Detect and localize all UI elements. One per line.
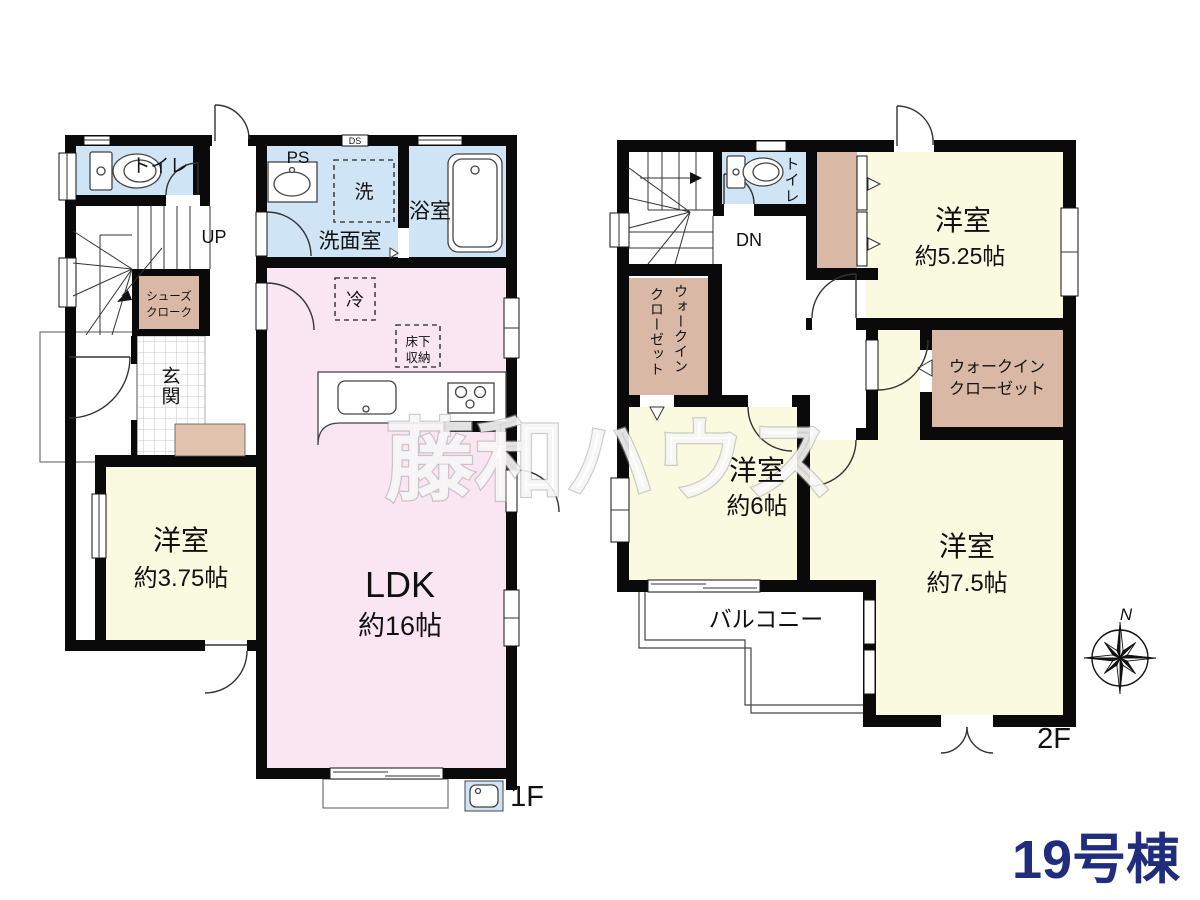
label-wic-right-2: クローゼット <box>949 380 1045 398</box>
unit-number-label: 19号棟 <box>1012 830 1181 890</box>
label-ldk: LDK <box>365 564 435 605</box>
label-dn: DN <box>736 230 762 250</box>
label-wic-left-2: クローゼット <box>649 287 665 377</box>
label-wic-left-1: ウォークイン <box>673 284 689 374</box>
label-washroom: 洗面室 <box>319 230 382 253</box>
label-toilet-2f: トイレ <box>783 156 800 204</box>
label-underfloor-1: 床下 <box>405 335 430 349</box>
label-floor1: 1F <box>510 781 544 813</box>
bathtub-icon <box>448 154 502 252</box>
label-bedroom-c-size: 約7.5帖 <box>926 570 1007 597</box>
ldk-room <box>267 268 506 768</box>
label-bedroom-a-size: 約5.25帖 <box>915 243 1006 269</box>
label-underfloor-2: 収納 <box>405 351 430 365</box>
label-bedroom-1f: 洋室 <box>153 525 209 556</box>
label-up: UP <box>201 227 226 247</box>
terrace <box>323 779 448 808</box>
label-shoe-closet-1: シューズ <box>146 289 191 303</box>
compass-north-label: N <box>1120 605 1133 624</box>
label-wic-right-1: ウォークイン <box>949 358 1045 376</box>
label-bedroom-b: 洋室 <box>729 455 785 486</box>
label-bedroom-1f-size: 約3.75帖 <box>134 565 229 592</box>
wic-right <box>932 330 1063 427</box>
floorplan-drawing: 藤和ハウス N トイレ PS DS 洗 洗面室 浴室 UP シューズ クローク … <box>0 0 1200 900</box>
label-ps: PS <box>287 148 310 167</box>
label-toilet-1f: トイレ <box>131 156 188 177</box>
label-entrance: 玄関 <box>159 366 180 406</box>
label-bathroom: 浴室 <box>409 200 451 223</box>
label-ds: DS <box>349 136 362 146</box>
entrance-step <box>175 424 245 456</box>
floorplan-page: 藤和ハウス N トイレ PS DS 洗 洗面室 浴室 UP シューズ クローク … <box>0 0 1200 900</box>
toilet-icon-2f <box>727 156 783 188</box>
entrance-porch <box>40 332 137 462</box>
label-bedroom-c: 洋室 <box>939 531 995 562</box>
label-fridge: 冷 <box>346 290 364 310</box>
wic-left <box>629 278 708 395</box>
label-bedroom-a: 洋室 <box>935 205 991 236</box>
label-bedroom-b-size: 約6帖 <box>726 493 787 520</box>
label-balcony: バルコニー <box>709 606 824 632</box>
label-floor2: 2F <box>1037 723 1071 755</box>
closet-2f <box>817 152 857 268</box>
outdoor-sink-icon <box>470 785 498 807</box>
label-ldk-size: 約16帖 <box>358 611 442 641</box>
washbasin-icon <box>268 162 317 202</box>
label-washer: 洗 <box>354 181 373 203</box>
label-shoe-closet-2: クローク <box>146 306 192 319</box>
